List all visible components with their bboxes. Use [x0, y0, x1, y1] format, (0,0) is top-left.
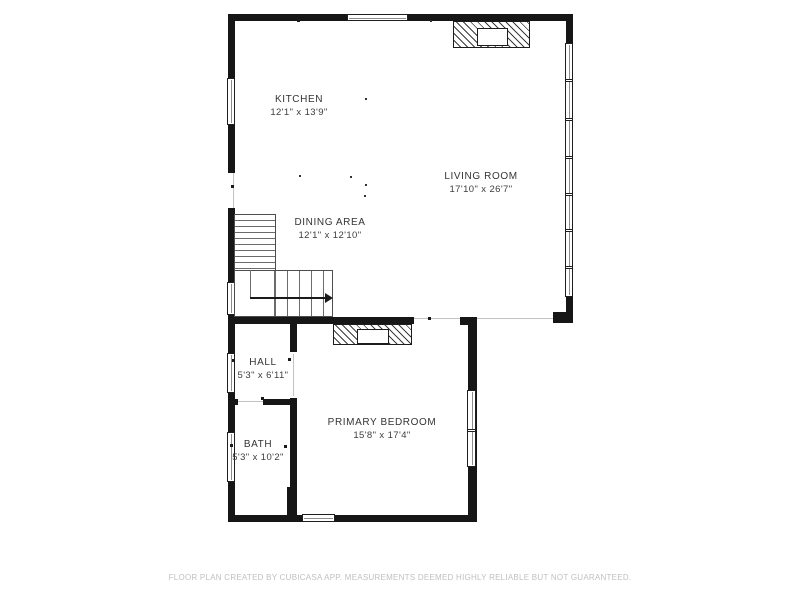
door-marker — [231, 185, 234, 188]
staircase-arrow-head — [325, 293, 333, 303]
window-divider — [566, 266, 572, 269]
chimney-mid-firebox — [357, 329, 389, 344]
wall-hall-right-top — [290, 323, 297, 352]
plan-speck — [364, 195, 366, 197]
room-dimensions: 15'8" x 17'4" — [328, 430, 437, 441]
fireplace-top-firebox — [477, 28, 508, 46]
window-bedroom-bottom — [302, 514, 335, 522]
window-band-living-right — [565, 43, 573, 297]
room-name: PRIMARY BEDROOM — [328, 417, 437, 428]
exterior-door-line — [233, 173, 234, 208]
door-marker — [232, 359, 235, 362]
wall-bedroom-right-top-stub — [460, 317, 476, 325]
window-divider — [566, 79, 572, 82]
window-bedroom-right — [467, 390, 476, 467]
room-name: DINING AREA — [294, 217, 365, 228]
room-label-kitchen: KITCHEN 12'1" x 13'9" — [270, 94, 327, 118]
staircase-landing-line — [250, 270, 251, 298]
door-marker — [284, 445, 287, 448]
hall-bedroom-door-line — [293, 354, 294, 396]
floorplan-canvas: KITCHEN 12'1" x 13'9" LIVING ROOM 17'10"… — [0, 0, 800, 600]
plan-speck — [365, 184, 367, 186]
wall-bath-right — [290, 398, 297, 487]
plan-speck — [299, 175, 301, 177]
door-marker — [261, 397, 264, 400]
room-label-bath: BATH 5'3" x 10'2" — [232, 439, 284, 463]
room-label-hall: HALL 5'3" x 6'11" — [238, 357, 289, 381]
room-name: HALL — [238, 357, 289, 368]
plan-speck — [430, 20, 432, 22]
wall-hall-bath-divider — [263, 399, 290, 405]
wall-hall-bath-divider-stub — [228, 399, 238, 405]
wall-mid-divider — [228, 317, 414, 324]
room-name: BATH — [232, 439, 284, 450]
room-dimensions: 5'3" x 10'2" — [232, 452, 284, 463]
room-dimensions: 17'10" x 26'7" — [444, 184, 517, 195]
room-dimensions: 5'3" x 6'11" — [238, 370, 289, 381]
window-divider — [566, 193, 572, 196]
wall-bottom — [228, 515, 477, 522]
window-divider — [468, 429, 475, 432]
window-divider — [566, 118, 572, 121]
door-marker — [297, 19, 300, 22]
room-name: LIVING ROOM — [444, 171, 517, 182]
room-dimensions: 12'1" x 12'10" — [294, 230, 365, 241]
staircase-lower-run — [234, 270, 333, 317]
room-dimensions: 12'1" x 13'9" — [270, 107, 327, 118]
living-south-opening-line — [477, 318, 553, 319]
staircase-upper-run — [234, 214, 276, 271]
window-divider — [566, 156, 572, 159]
bedroom-door-threshold — [414, 318, 460, 319]
bath-door-threshold — [238, 401, 263, 402]
window-top-wall — [347, 14, 408, 21]
room-label-primary-bedroom: PRIMARY BEDROOM 15'8" x 17'4" — [328, 417, 437, 441]
plan-speck — [365, 98, 367, 100]
room-name: KITCHEN — [270, 94, 327, 105]
footer-disclaimer: FLOOR PLAN CREATED BY CUBICASA APP. MEAS… — [0, 573, 800, 582]
room-label-dining-area: DINING AREA 12'1" x 12'10" — [294, 217, 365, 241]
wall-bath-right-bottom — [287, 487, 297, 522]
staircase-direction-arrow — [250, 297, 326, 299]
window-left-kitchen — [227, 78, 235, 125]
plan-speck — [350, 176, 352, 178]
window-divider — [566, 229, 572, 232]
room-label-living-room: LIVING ROOM 17'10" x 26'7" — [444, 171, 517, 195]
staircase-treads — [274, 271, 332, 316]
wall-right-bottom-stub — [553, 312, 573, 323]
door-marker — [428, 317, 431, 320]
